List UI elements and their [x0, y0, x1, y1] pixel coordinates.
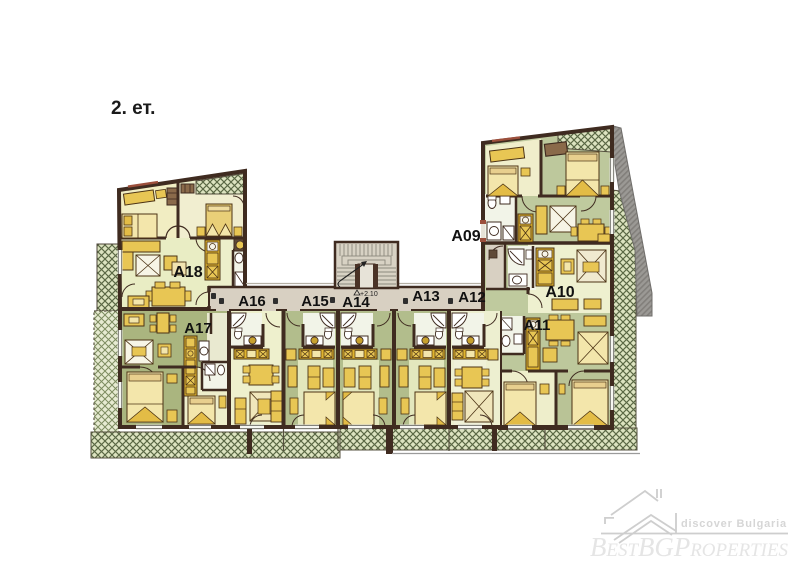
- svg-text:A11: A11: [524, 317, 551, 334]
- svg-text:A15: A15: [301, 293, 329, 310]
- svg-text:A18: A18: [173, 264, 202, 281]
- svg-text:A16: A16: [238, 293, 266, 310]
- svg-text:A12: A12: [458, 289, 486, 306]
- svg-text:A13: A13: [412, 288, 440, 305]
- svg-text:A17: A17: [184, 320, 212, 337]
- svg-text:2. ет.: 2. ет.: [111, 98, 155, 119]
- svg-text:discover Bulgaria: discover Bulgaria: [681, 518, 787, 530]
- svg-text:A09: A09: [451, 228, 480, 245]
- svg-text:A10: A10: [545, 284, 574, 301]
- svg-text:A14: A14: [342, 294, 370, 311]
